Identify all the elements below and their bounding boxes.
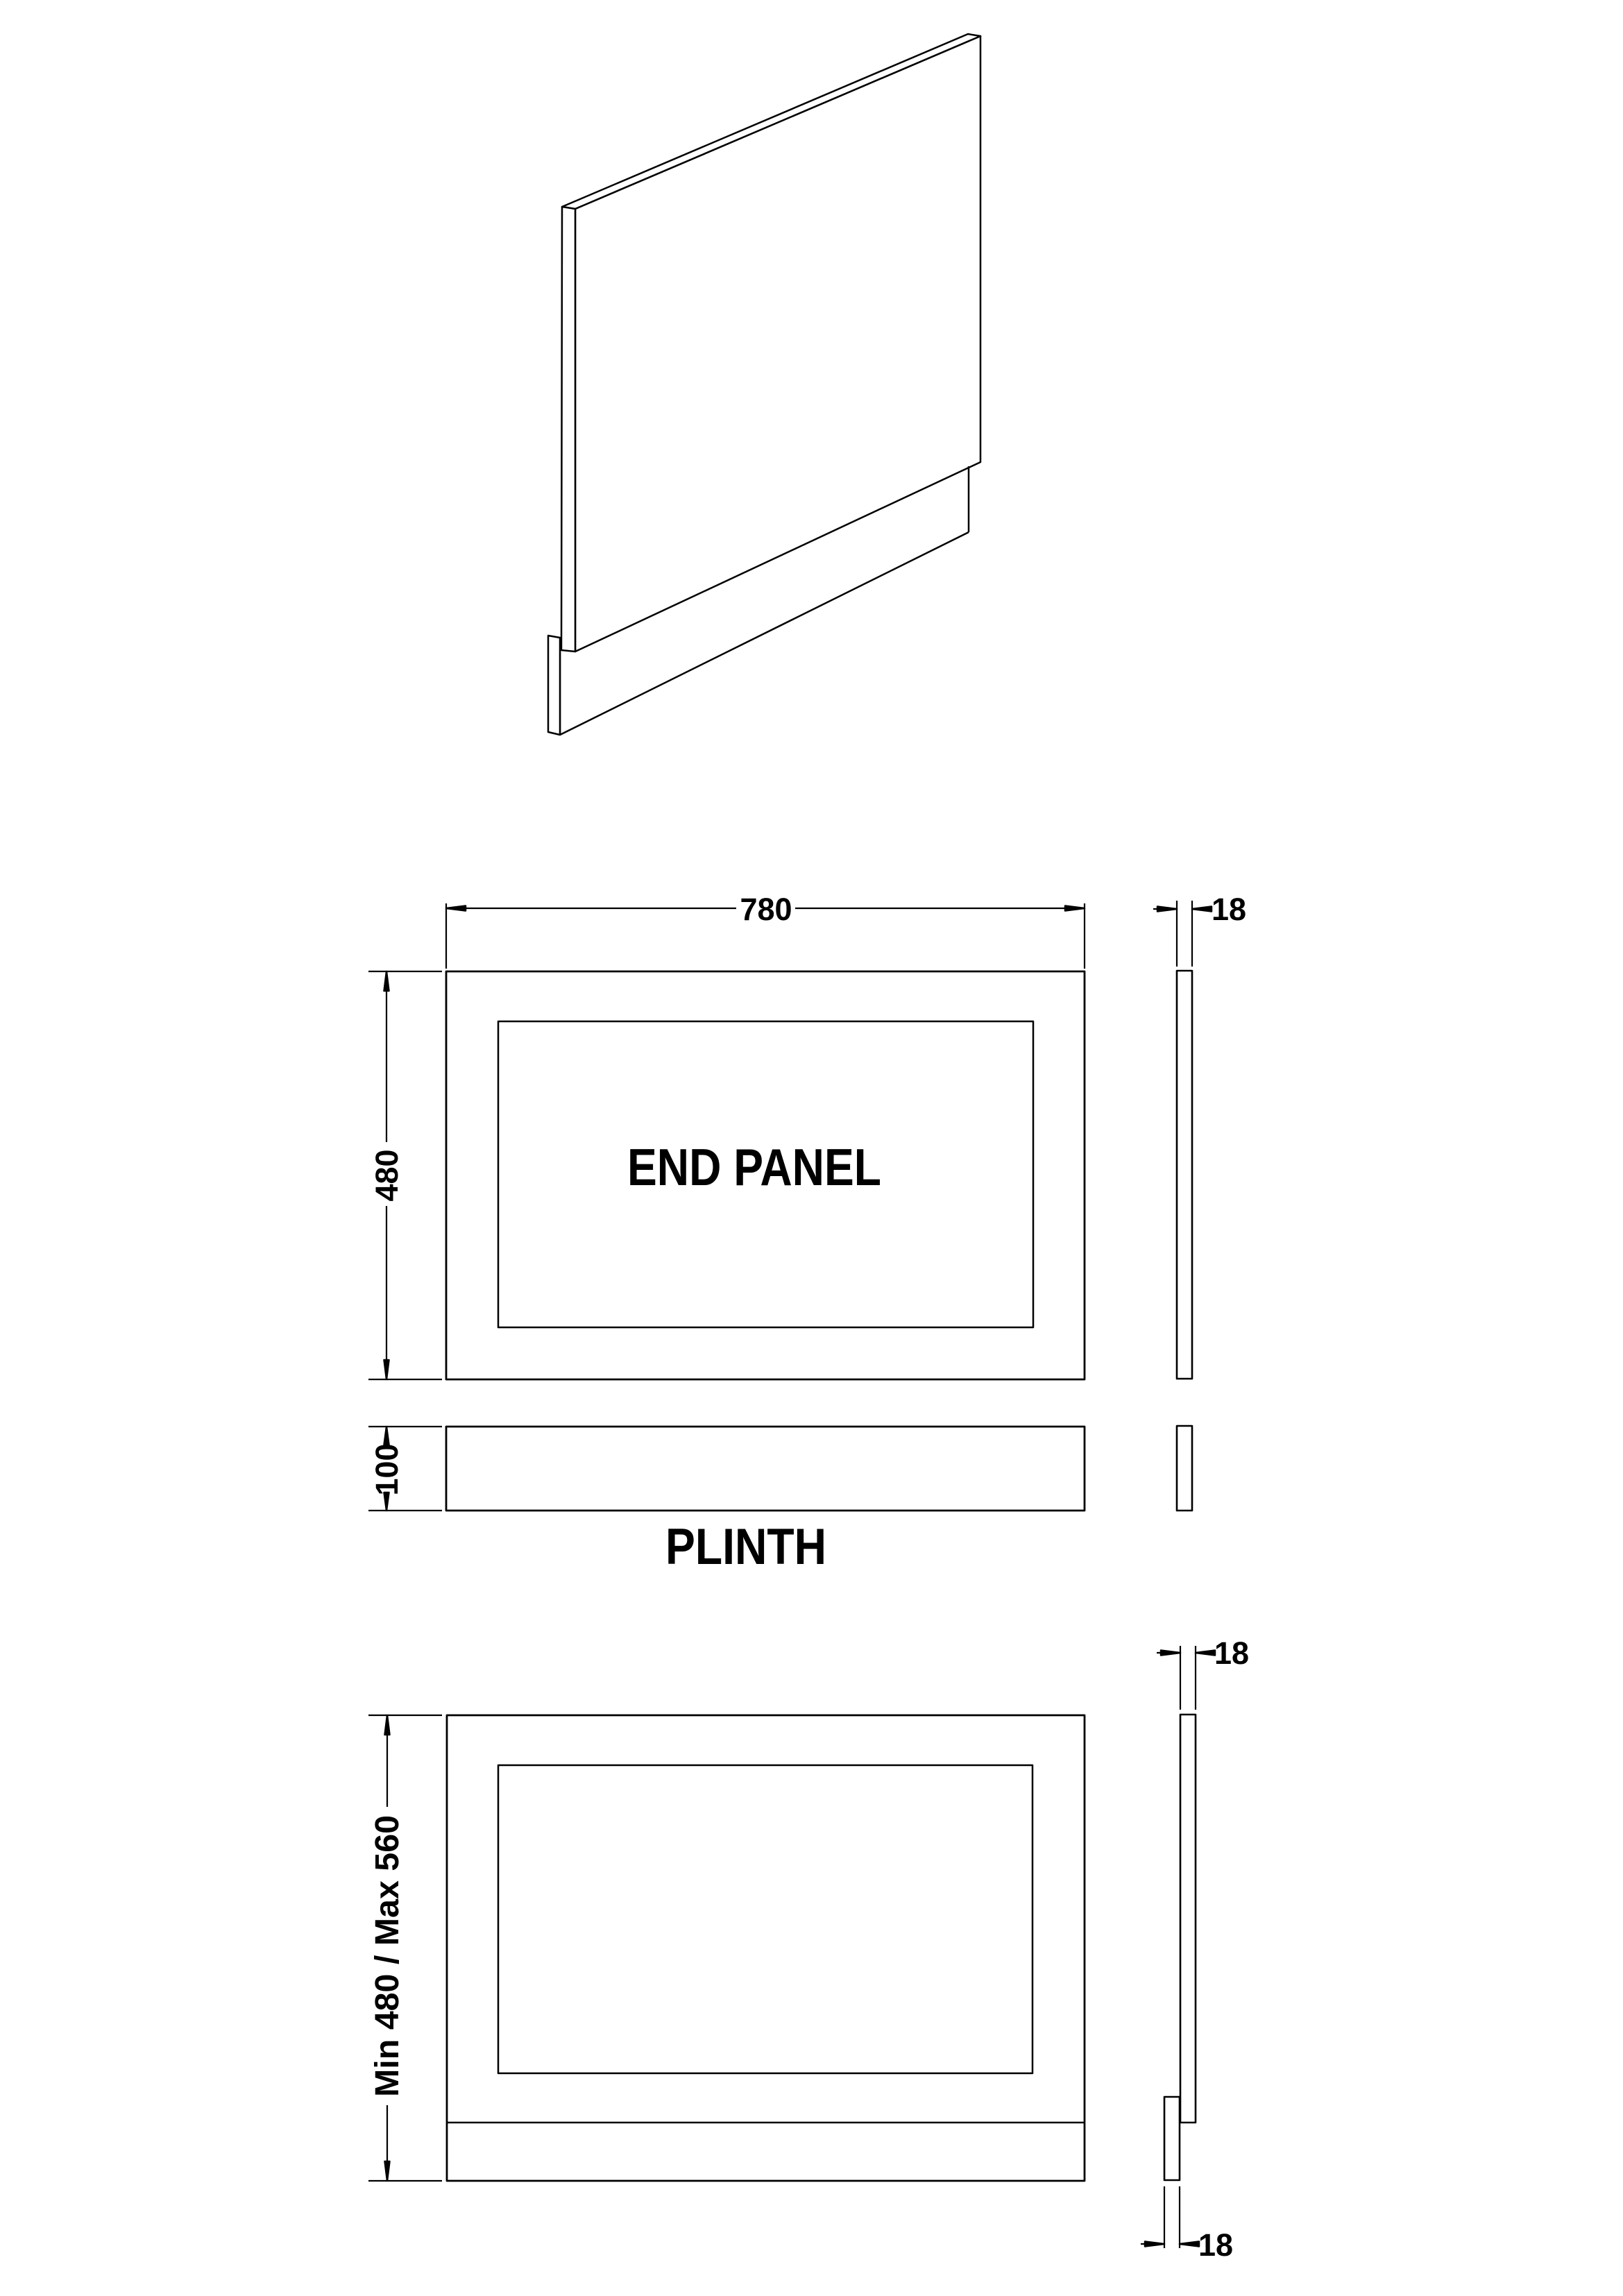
svg-text:780: 780 xyxy=(740,892,792,927)
svg-text:100: 100 xyxy=(369,1443,405,1495)
svg-text:18: 18 xyxy=(1198,2227,1233,2263)
svg-text:480: 480 xyxy=(369,1149,405,1201)
svg-text:18: 18 xyxy=(1212,892,1246,927)
svg-text:PLINTH: PLINTH xyxy=(665,1519,826,1575)
svg-text:18: 18 xyxy=(1214,1635,1249,1671)
svg-text:END PANEL: END PANEL xyxy=(627,1138,881,1196)
svg-text:Min 480 / Max 560: Min 480 / Max 560 xyxy=(369,1815,406,2097)
